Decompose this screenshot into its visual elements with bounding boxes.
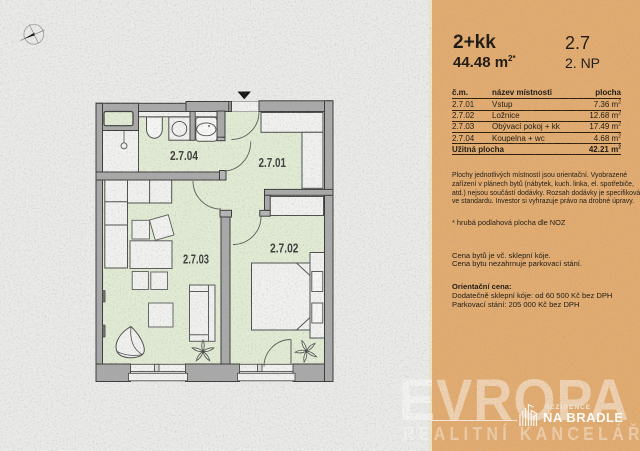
svg-text:2.7.04: 2.7.04 xyxy=(170,148,199,163)
svg-text:2.7.03: 2.7.03 xyxy=(183,252,209,267)
svg-text:2.7.02: 2.7.02 xyxy=(270,241,299,256)
svg-text:2.7.01: 2.7.01 xyxy=(259,155,287,170)
